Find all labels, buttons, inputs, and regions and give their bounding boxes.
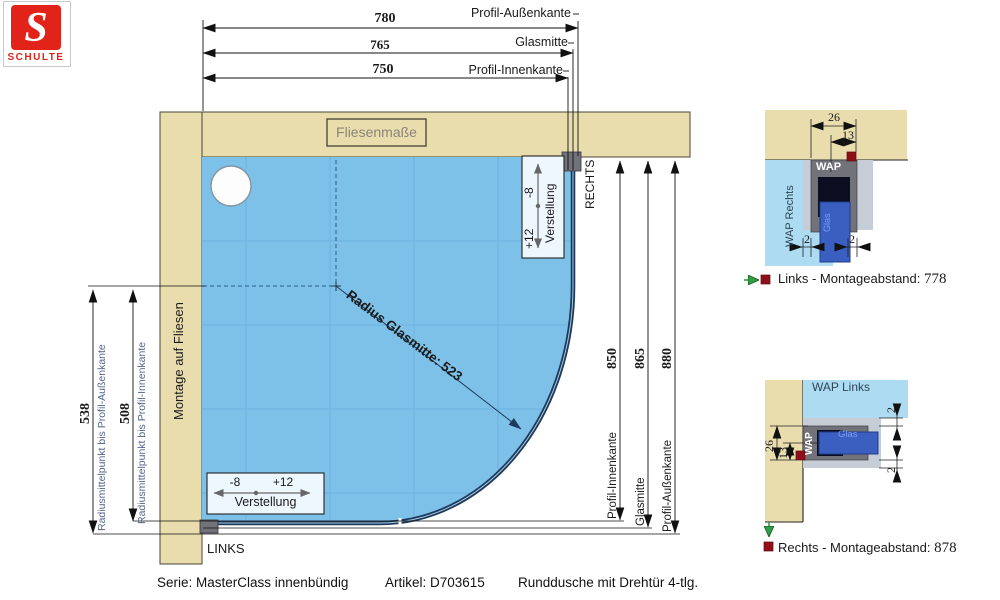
glass-label: Glas: [823, 213, 833, 232]
montage-caption-links: Links - Montageabstand: 778: [778, 271, 947, 288]
dim-label-glasmitte-right: Glasmitte: [635, 477, 648, 526]
red-square-icon: [764, 542, 773, 551]
detail-dim-26: 26: [763, 440, 776, 452]
red-square-icon: [761, 275, 770, 284]
dim-label-glasmitte-top: Glasmitte: [456, 36, 568, 50]
dim-value-508: 508: [118, 403, 133, 424]
schulte-logo: S SCHULTE: [3, 1, 71, 67]
adjust-label: Verstellung: [544, 184, 557, 243]
dim-label-radius-aussenkante: Radiusmittelpunkt bis Profil-Außenkante: [97, 344, 109, 531]
caption-text: Links - Montageabstand:: [778, 271, 920, 286]
dim-value-865: 865: [633, 348, 648, 369]
side-label-rechts: RECHTS: [584, 160, 597, 209]
dim-value-850: 850: [605, 348, 620, 369]
wap-links-area-label: WAP Links: [812, 381, 870, 394]
dim-label-profil-innenkante-top: Profil-Innenkante: [451, 64, 563, 78]
dim-value-765: 765: [358, 38, 402, 52]
detail-view-bottom: [764, 380, 908, 551]
detail-dim-26: 26: [822, 111, 846, 124]
caption-text: Rechts - Montageabstand:: [778, 540, 930, 555]
dim-label-profil-aussenkante-right: Profil-Außenkante: [662, 440, 675, 532]
footer-series: Serie: MasterClass innenbündig: [157, 576, 348, 591]
detail-view-top: [744, 110, 908, 284]
dim-value-880: 880: [660, 348, 675, 369]
logo-brand-text: SCHULTE: [4, 52, 68, 63]
detail-dim-13: 13: [836, 129, 860, 142]
wap-rechts-area-label: WAP Rechts: [784, 185, 796, 247]
caption-value: 878: [934, 540, 957, 556]
shower-floor: [202, 157, 573, 523]
adjust-plus-label: +12: [523, 229, 536, 249]
wall-mount-label: Montage auf Fliesen: [172, 302, 186, 420]
drawing-canvas: [0, 0, 1000, 600]
footer-article: Artikel: D703615: [385, 576, 485, 591]
side-label-links: LINKS: [207, 542, 245, 556]
dim-label-radius-innenkante: Radiusmittelpunkt bis Profil-Innenkante: [137, 342, 149, 524]
dim-value-538: 538: [78, 403, 93, 424]
anchor-marker: [847, 152, 856, 161]
adjust-minus-label: -8: [523, 187, 536, 198]
door-joint: [399, 518, 402, 528]
detail-dim-2-bottom: 2: [885, 467, 898, 473]
logo-letter: S: [24, 7, 47, 49]
dim-label-profil-innenkante-right: Profil-Innenkante: [607, 432, 620, 519]
technical-drawing-page: S SCHULTE 780 765 750 Profil-Außenkante …: [0, 0, 1000, 600]
wap-profile-label: WAP: [816, 161, 841, 173]
adjust-label: Verstellung: [207, 496, 324, 510]
dim-label-profil-aussenkante-top: Profil-Außenkante: [456, 7, 571, 21]
logo-mark: S: [11, 5, 61, 50]
detail-dim-2-right: 2: [844, 233, 860, 246]
detail-dim-2-left: 2: [799, 233, 815, 246]
adjust-minus-label: -8: [214, 476, 256, 489]
glass-label: Glas: [838, 430, 858, 440]
tiles-label: Fliesenmaße: [327, 119, 426, 146]
wap-profile-label: WAP: [804, 432, 815, 455]
adjust-plus-label: +12: [256, 476, 310, 489]
drain-circle: [211, 166, 251, 206]
detail-dim-2-top: 2: [885, 407, 898, 413]
footer-product: Runddusche mit Drehtür 4-tlg.: [518, 576, 698, 591]
montage-caption-rechts: Rechts - Montageabstand: 878: [778, 540, 957, 557]
dim-value-750: 750: [361, 62, 405, 77]
dim-value-780: 780: [363, 11, 407, 26]
detail-dim-13: 13: [777, 447, 790, 459]
caption-value: 778: [924, 271, 947, 287]
